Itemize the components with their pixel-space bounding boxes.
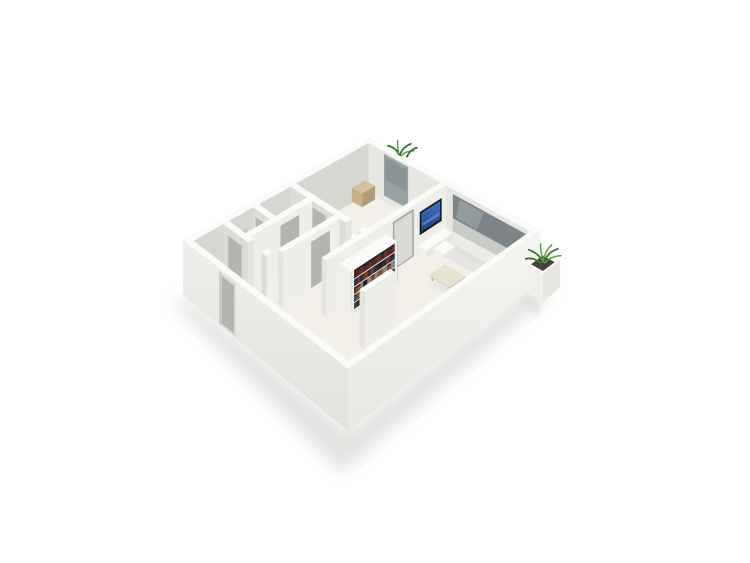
page-background xyxy=(0,0,750,563)
book-spine xyxy=(354,296,356,302)
bookshelf-end-panel xyxy=(340,264,352,314)
wall-end-cap xyxy=(278,249,283,308)
bookshelf-frame-right xyxy=(352,270,355,314)
entry-door xyxy=(222,276,234,334)
wall-end-cap xyxy=(322,258,327,317)
entry-door-jamb xyxy=(219,271,221,326)
wall-end-cap xyxy=(360,289,365,349)
floor-plan-render xyxy=(0,0,750,563)
